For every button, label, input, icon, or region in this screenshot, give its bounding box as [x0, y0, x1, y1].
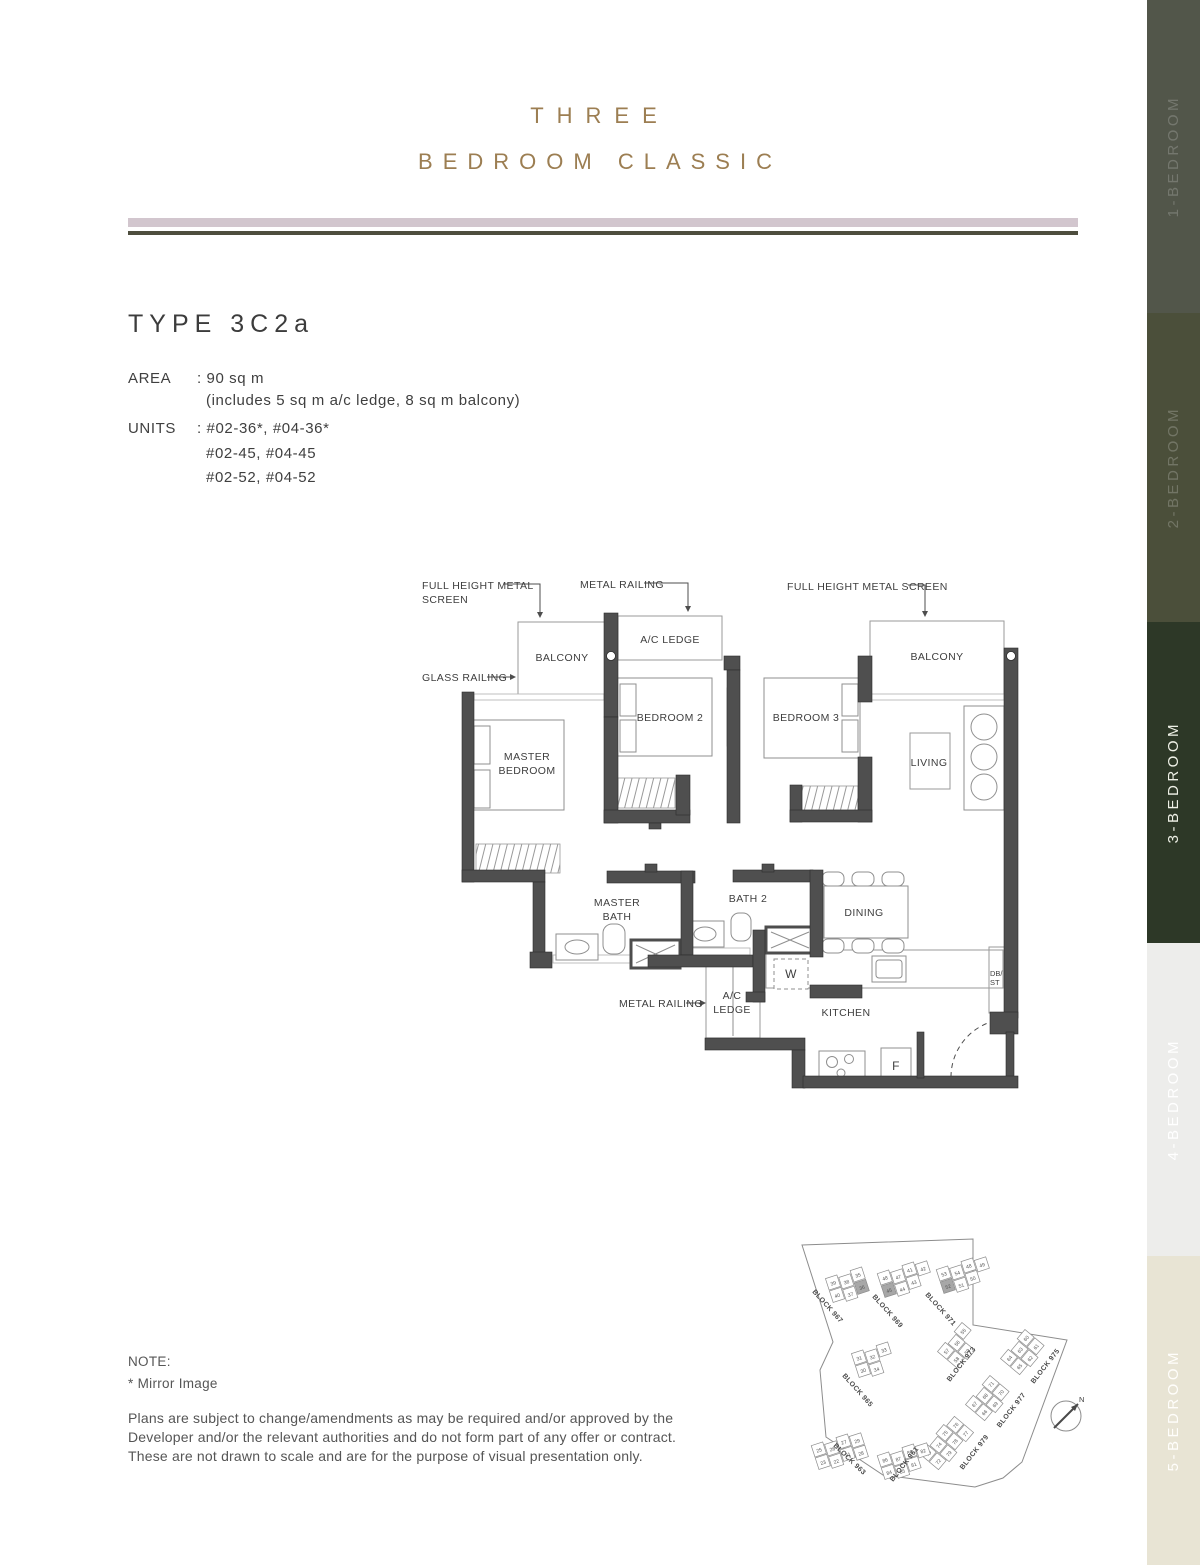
room-label-living: LIVING — [911, 757, 948, 769]
sidebar-item-label: 1-BEDROOM — [1165, 95, 1182, 217]
page-title-line1: THREE — [0, 103, 1200, 129]
room-label-ac-ledge-bottom-1: A/C — [723, 990, 742, 1002]
annotation-full-height-metal-screen-left2: SCREEN — [422, 594, 468, 606]
room-label-bedroom3: BEDROOM 3 — [773, 712, 840, 724]
floor-plan: FULL HEIGHT METAL SCREEN METAL RAILING F… — [418, 562, 1068, 1122]
units-value-line2: #02-45, #04-45 — [206, 445, 316, 462]
label-fridge: F — [892, 1059, 900, 1073]
compass-icon: N — [1051, 1395, 1084, 1431]
room-label-master-bath-1: MASTER — [594, 897, 640, 909]
note-mirror-image: * Mirror Image — [128, 1376, 218, 1391]
room-label-master-bedroom-1: MASTER — [504, 751, 550, 763]
room-label-kitchen: KITCHEN — [822, 1007, 871, 1019]
area-label: AREA — [128, 370, 171, 387]
unit-type-title: TYPE 3C2a — [128, 310, 314, 339]
compass-north-label: N — [1079, 1395, 1084, 1404]
room-label-bedroom2: BEDROOM 2 — [637, 712, 704, 724]
site-block-label: BLOCK 965 — [841, 1373, 874, 1409]
sidebar-item-4-bedroom: 4-BEDROOM — [1147, 943, 1200, 1256]
room-label-bath2: BATH 2 — [729, 893, 767, 905]
header-accent-bar — [128, 218, 1078, 227]
sidebar-item-label: 4-BEDROOM — [1165, 1038, 1182, 1160]
annotation-glass-railing: GLASS RAILING — [422, 672, 507, 684]
sidebar-item-5-bedroom: 5-BEDROOM — [1147, 1256, 1200, 1565]
units-value-line3: #02-52, #04-52 — [206, 469, 316, 486]
room-label-ac-ledge-bottom-2: LEDGE — [713, 1004, 751, 1016]
brochure-page: THREE BEDROOM CLASSIC TYPE 3C2a AREA : 9… — [0, 0, 1200, 1565]
room-label-master-bedroom-2: BEDROOM — [498, 765, 555, 777]
disclaimer-line1: Plans are subject to change/amendments a… — [128, 1410, 673, 1426]
area-note: (includes 5 sq m a/c ledge, 8 sq m balco… — [206, 392, 520, 409]
sidebar-item-label: 3-BEDROOM — [1165, 721, 1182, 843]
header-rule — [128, 231, 1078, 235]
sidebar-item-1-bedroom: 1-BEDROOM — [1147, 0, 1200, 313]
area-value: : 90 sq m — [197, 370, 264, 387]
site-cluster: 53525451485049 — [936, 1254, 993, 1296]
site-cluster: 394038373536 — [825, 1267, 870, 1305]
site-block-label: BLOCK 969 — [871, 1294, 904, 1330]
site-block-label: BLOCK 971 — [924, 1292, 957, 1328]
sidebar-item-label: 5-BEDROOM — [1165, 1349, 1182, 1471]
site-cluster: 3130323433 — [851, 1342, 896, 1380]
label-dbst-1: DB/ — [990, 969, 1003, 978]
sidebar-item-3-bedroom: 3-BEDROOM — [1147, 622, 1200, 943]
units-value-line1: : #02-36*, #04-36* — [197, 420, 330, 437]
units-label: UNITS — [128, 420, 176, 437]
annotation-full-height-metal-screen-left: FULL HEIGHT METAL — [422, 580, 534, 592]
label-dbst-2: ST — [990, 978, 1000, 987]
disclaimer-line2: Developer and/or the relevant authoritie… — [128, 1429, 676, 1445]
label-washer: W — [785, 967, 797, 981]
sidebar-item-2-bedroom: 2-BEDROOM — [1147, 313, 1200, 622]
room-label-master-bath-2: BATH — [603, 911, 632, 923]
annotation-metal-railing-bottom: METAL RAILING — [619, 998, 703, 1010]
note-heading: NOTE: — [128, 1354, 171, 1369]
page-title-line2: BEDROOM CLASSIC — [0, 149, 1200, 175]
disclaimer-line3: These are not drawn to scale and are for… — [128, 1448, 643, 1464]
room-label-ac-ledge-top: A/C LEDGE — [640, 634, 700, 646]
site-plan: 3940383735364845474441434253525451485049… — [790, 1230, 1095, 1535]
annotation-full-height-metal-screen-right: FULL HEIGHT METAL SCREEN — [787, 581, 948, 593]
room-label-dining: DINING — [844, 907, 883, 919]
annotation-metal-railing-top: METAL RAILING — [580, 579, 664, 591]
room-label-balcony-right: BALCONY — [911, 651, 964, 663]
room-label-balcony-left: BALCONY — [536, 652, 589, 664]
sidebar-item-label: 2-BEDROOM — [1165, 406, 1182, 528]
